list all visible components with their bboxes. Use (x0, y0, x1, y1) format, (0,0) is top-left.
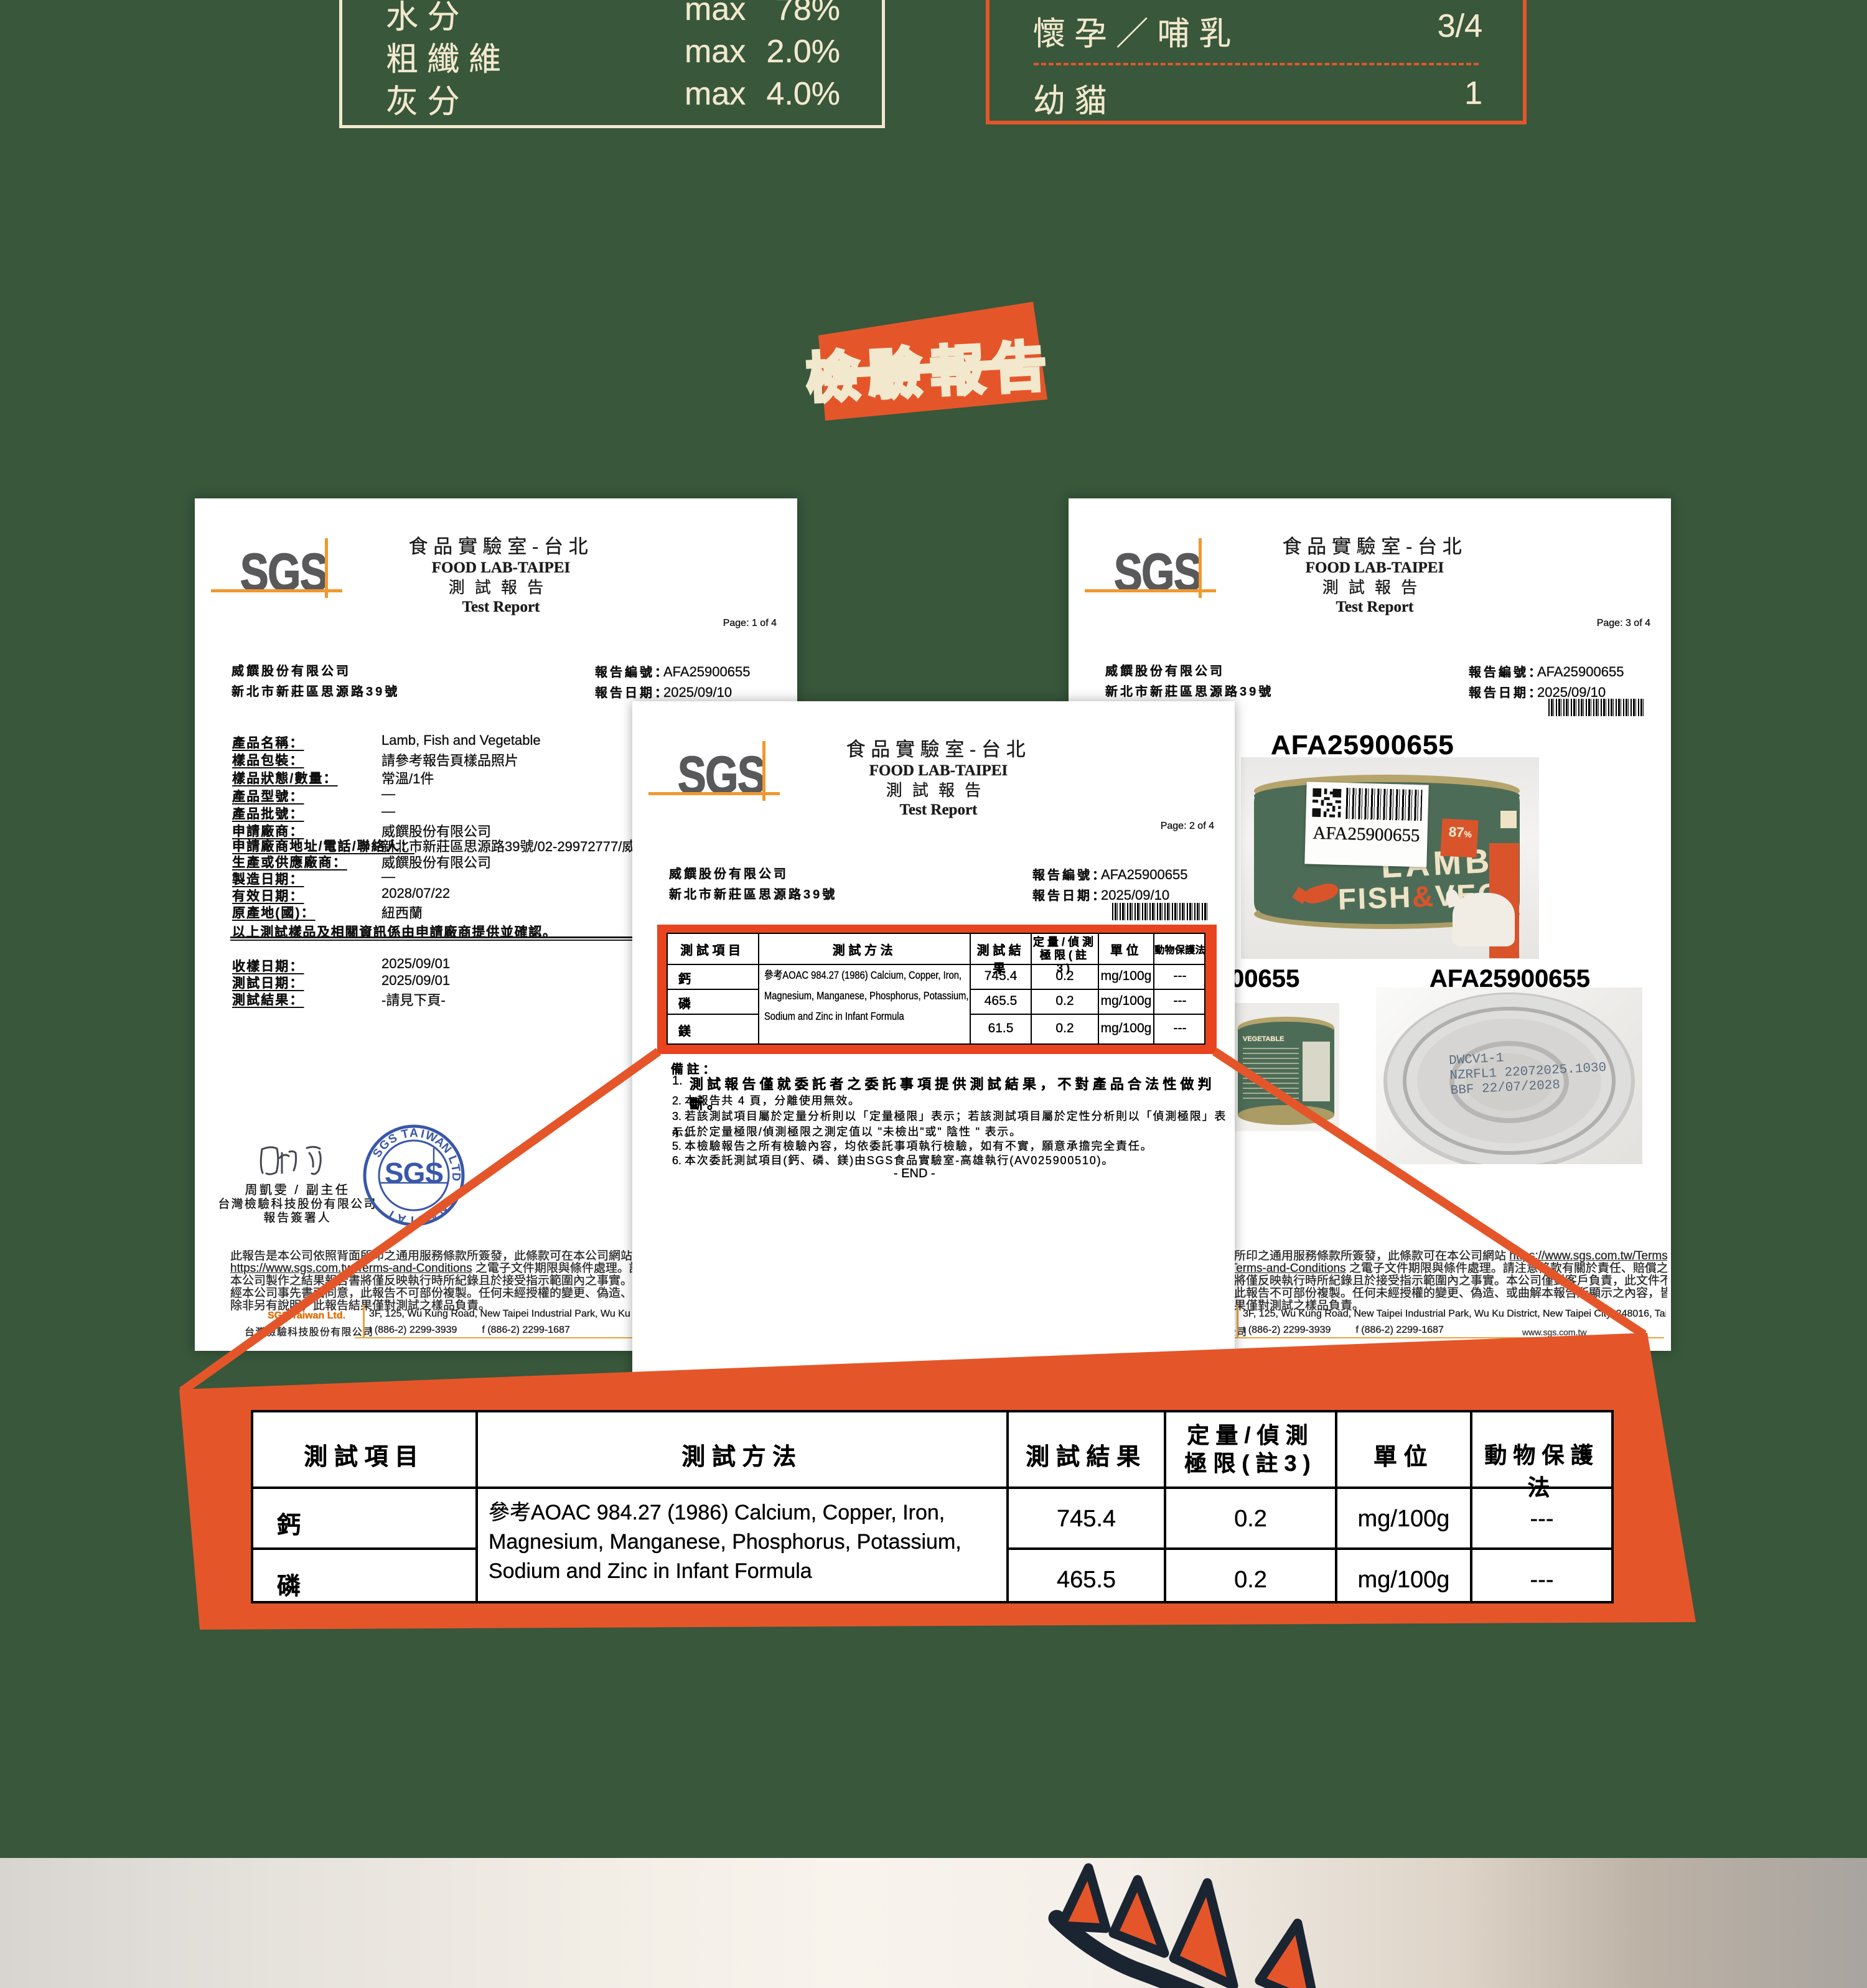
svg-text:DWCV1-1: DWCV1-1 (1449, 1051, 1504, 1068)
svg-text:SGS: SGS (385, 1157, 443, 1189)
svg-text:T: T (400, 1127, 410, 1141)
svg-text:T: T (448, 1164, 462, 1173)
svg-text:D: D (449, 1172, 462, 1181)
svg-text:T: T (385, 1206, 398, 1221)
svg-text:A: A (409, 1127, 418, 1140)
svg-text:I: I (410, 1213, 414, 1226)
